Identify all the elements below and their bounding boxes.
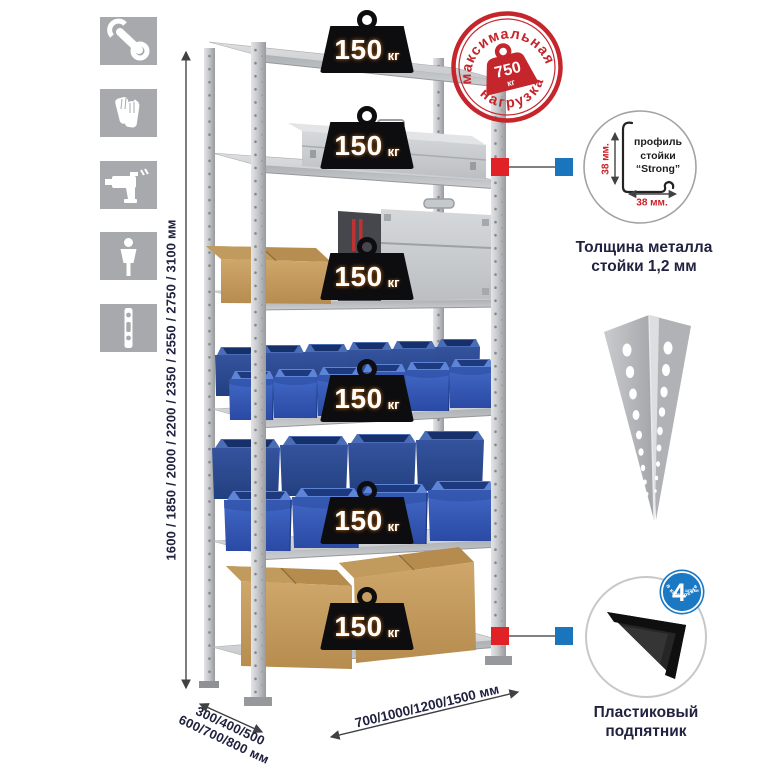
product-infographic: максимальная нагрузка 750 кг — [0, 0, 765, 765]
gloves-icon — [100, 89, 157, 137]
wrench-icon — [100, 17, 157, 65]
person-icon — [100, 232, 157, 280]
qty-badge: 4 штуки в комплекте — [660, 570, 705, 615]
angle-post-illustration — [604, 315, 691, 520]
profile-label-line3: “Strong” — [634, 163, 682, 177]
shelf-load-badge-1: 150кг — [320, 10, 414, 73]
plastic-foot-caption: Пластиковый подпятник — [594, 703, 699, 741]
thickness-caption-line2: стойки 1,2 мм — [576, 257, 713, 276]
max-load-stamp: максимальная нагрузка 750 кг — [442, 2, 572, 132]
profile-dim-horizontal: 38 мм. — [636, 198, 667, 209]
height-dimension-label: 1600 / 1850 / 2000 / 2200 / 2350 / 2550 … — [164, 219, 179, 560]
red-marker-top — [491, 158, 509, 176]
metal-thickness-caption: Толщина металла стойки 1,2 мм — [576, 238, 713, 276]
thickness-caption-line1: Толщина металла — [576, 238, 713, 257]
foot-caption-line1: Пластиковый — [594, 703, 699, 722]
shelf-load-badge-2: 150кг — [320, 106, 414, 169]
shelf-load-badge-3: 150кг — [320, 237, 414, 300]
foot-callout-connector — [491, 627, 573, 645]
shelf-load-badge-5: 150кг — [320, 481, 414, 544]
plastic-foot-circle: 4 штуки в комплекте — [586, 570, 706, 698]
drill-icon — [100, 161, 157, 209]
blue-marker-bottom — [555, 627, 573, 645]
blue-marker-top — [555, 158, 573, 176]
shelf-load-badge-6: 150кг — [320, 587, 414, 650]
shelf-load-badge-4: 150кг — [320, 359, 414, 422]
profile-label-line1: профиль — [634, 136, 682, 150]
level-icon — [100, 304, 157, 352]
profile-label: профиль стойки “Strong” — [634, 136, 682, 177]
red-marker-bottom — [491, 627, 509, 645]
foot-caption-line2: подпятник — [594, 722, 699, 741]
profile-callout-connector — [491, 158, 573, 176]
profile-label-line2: стойки — [634, 149, 682, 163]
profile-dim-vertical: 38 мм. — [601, 143, 612, 174]
